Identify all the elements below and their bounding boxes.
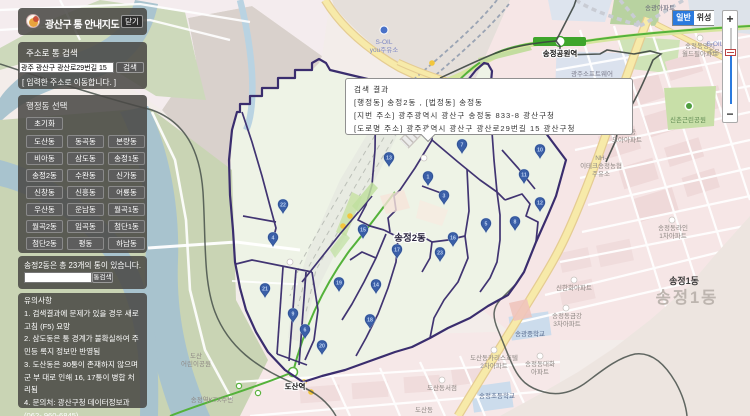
svg-text:23: 23 xyxy=(437,250,443,256)
svg-text:12: 12 xyxy=(537,200,543,206)
svg-text:송광중학교: 송광중학교 xyxy=(515,329,545,338)
svg-text:2차아파트: 2차아파트 xyxy=(480,361,508,370)
svg-text:이테크송정농협: 이테크송정농협 xyxy=(580,161,622,170)
svg-text:모아아파트: 모아아파트 xyxy=(612,135,642,144)
svg-text:you주유소: you주유소 xyxy=(370,46,398,54)
svg-text:3차아파트: 3차아파트 xyxy=(553,319,581,328)
svg-text:송광아파트: 송광아파트 xyxy=(645,3,675,12)
svg-text:1차아파트: 1차아파트 xyxy=(659,231,687,240)
svg-text:광주소프트웨어: 광주소프트웨어 xyxy=(571,69,613,78)
svg-text:6: 6 xyxy=(304,327,307,333)
svg-text:22: 22 xyxy=(280,202,286,208)
svg-text:4: 4 xyxy=(272,235,275,241)
svg-text:7: 7 xyxy=(461,142,464,148)
svg-text:어린이공원: 어린이공원 xyxy=(181,359,211,368)
svg-text:송정2동: 송정2동 xyxy=(394,232,426,244)
svg-text:10: 10 xyxy=(537,147,543,153)
svg-text:14: 14 xyxy=(373,282,379,288)
svg-text:18: 18 xyxy=(367,317,373,323)
svg-text:16: 16 xyxy=(450,235,456,241)
svg-text:도산동: 도산동 xyxy=(415,405,433,414)
svg-text:3: 3 xyxy=(443,193,446,199)
svg-text:20: 20 xyxy=(319,343,325,349)
svg-text:21: 21 xyxy=(262,286,268,292)
svg-text:송정1동: 송정1동 xyxy=(669,275,699,286)
svg-text:신촌근린공원: 신촌근린공원 xyxy=(670,115,706,124)
svg-text:15: 15 xyxy=(360,227,366,233)
svg-text:도산동카리스호텔: 도산동카리스호텔 xyxy=(470,353,518,362)
svg-text:NH-: NH- xyxy=(595,155,607,162)
svg-text:송정동라인: 송정동라인 xyxy=(658,223,688,232)
svg-text:17: 17 xyxy=(394,247,400,253)
svg-text:도산역: 도산역 xyxy=(285,381,306,391)
svg-text:송정동금강: 송정동금강 xyxy=(552,311,582,320)
svg-text:송정1동: 송정1동 xyxy=(656,288,719,307)
svg-text:19: 19 xyxy=(336,280,342,286)
svg-text:송정공원역: 송정공원역 xyxy=(543,48,578,58)
svg-text:주유소: 주유소 xyxy=(592,170,610,178)
svg-text:13: 13 xyxy=(386,155,392,161)
svg-text:11: 11 xyxy=(521,172,527,178)
svg-text:아파트: 아파트 xyxy=(531,367,549,376)
svg-text:송정동대화: 송정동대화 xyxy=(525,359,555,368)
svg-text:신한화아파트: 신한화아파트 xyxy=(556,283,592,292)
svg-text:5: 5 xyxy=(485,221,488,227)
svg-text:도산: 도산 xyxy=(190,351,202,360)
svg-text:송정초등학교: 송정초등학교 xyxy=(479,391,515,400)
svg-text:8: 8 xyxy=(514,219,517,225)
svg-text:도산동서점: 도산동서점 xyxy=(427,383,457,392)
svg-text:송정역KTX주변: 송정역KTX주변 xyxy=(191,395,234,404)
svg-text:S-OIL: S-OIL xyxy=(376,39,393,46)
svg-text:9: 9 xyxy=(292,311,295,317)
svg-text:1: 1 xyxy=(427,174,430,180)
